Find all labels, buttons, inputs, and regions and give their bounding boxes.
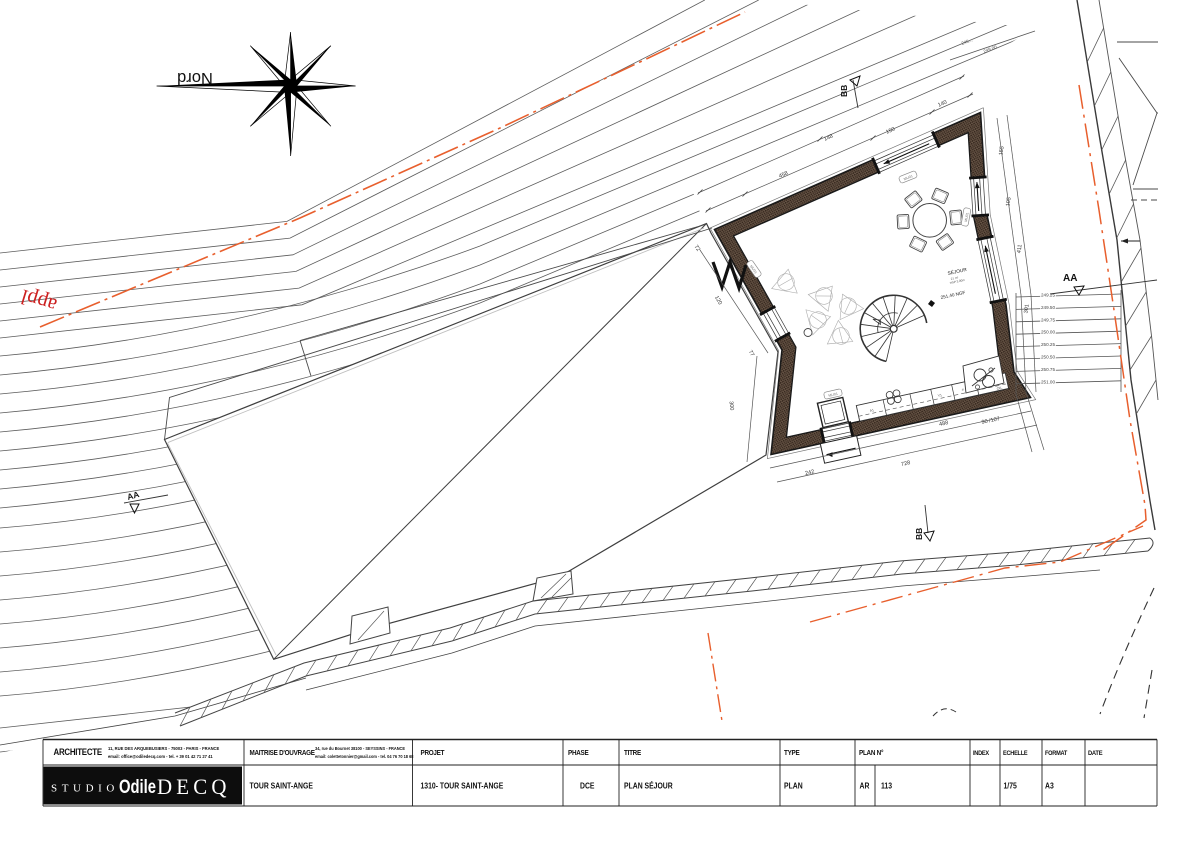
svg-text:11, RUE DES ARQUEBUSIERS - 750: 11, RUE DES ARQUEBUSIERS - 75003 - PARIS… xyxy=(108,746,219,751)
svg-text:250.25: 250.25 xyxy=(1041,342,1055,347)
svg-text:AR: AR xyxy=(860,781,871,791)
svg-text:Odile: Odile xyxy=(119,776,156,797)
svg-text:A3: A3 xyxy=(1045,781,1054,791)
svg-text:DCE: DCE xyxy=(580,781,595,791)
svg-text:FORMAT: FORMAT xyxy=(1045,751,1068,757)
svg-text:email: colettetonnier@gmail.co: email: colettetonnier@gmail.com - tel. 0… xyxy=(315,754,414,759)
svg-text:411: 411 xyxy=(1016,244,1023,254)
svg-text:TITRE: TITRE xyxy=(624,750,642,757)
svg-text:105: 105 xyxy=(1005,197,1012,207)
svg-text:STUDIO: STUDIO xyxy=(51,783,119,795)
svg-text:250.00: 250.00 xyxy=(1041,330,1055,335)
svg-text:PLAN SÉJOUR: PLAN SÉJOUR xyxy=(624,781,673,791)
svg-text:PLAN N°: PLAN N° xyxy=(859,749,884,757)
svg-text:1310- TOUR SAINT-ANGE: 1310- TOUR SAINT-ANGE xyxy=(421,781,504,791)
svg-text:Nord: Nord xyxy=(177,69,213,87)
svg-text:PLAN: PLAN xyxy=(784,781,803,791)
svg-text:DATE: DATE xyxy=(1088,750,1102,757)
svg-text:INDEX: INDEX xyxy=(973,751,989,757)
svg-text:155: 155 xyxy=(998,146,1005,156)
svg-text:113: 113 xyxy=(881,781,892,791)
svg-text:250.50: 250.50 xyxy=(1041,355,1055,360)
svg-text:MAITRISE D'OUVRAGE: MAITRISE D'OUVRAGE xyxy=(250,750,316,757)
svg-text:249.50: 249.50 xyxy=(1041,305,1055,310)
svg-text:BB: BB xyxy=(914,528,924,540)
svg-text:email: office@odiledecq.com -: email: office@odiledecq.com - tel. + 39 … xyxy=(108,754,213,759)
svg-text:PROJET: PROJET xyxy=(421,750,446,757)
svg-text:249.75: 249.75 xyxy=(1041,317,1055,322)
svg-text:250.75: 250.75 xyxy=(1041,367,1055,372)
svg-text:300: 300 xyxy=(728,401,735,411)
svg-text:PHASE: PHASE xyxy=(568,750,589,757)
svg-text:ECHELLE: ECHELLE xyxy=(1003,751,1028,757)
svg-text:BB: BB xyxy=(839,85,849,97)
svg-text:DECQ: DECQ xyxy=(157,774,231,799)
svg-text:1/75: 1/75 xyxy=(1004,781,1017,791)
svg-text:AA: AA xyxy=(1063,273,1077,284)
svg-text:251.00: 251.00 xyxy=(1041,379,1055,384)
svg-text:TYPE: TYPE xyxy=(784,750,800,757)
svg-text:TOUR SAINT-ANGE: TOUR SAINT-ANGE xyxy=(250,781,314,791)
svg-text:34, rue du Bournet 38100 - SEY: 34, rue du Bournet 38100 - SEYSSINS - FR… xyxy=(315,746,405,751)
svg-text:ARCHITECTE: ARCHITECTE xyxy=(54,747,103,758)
